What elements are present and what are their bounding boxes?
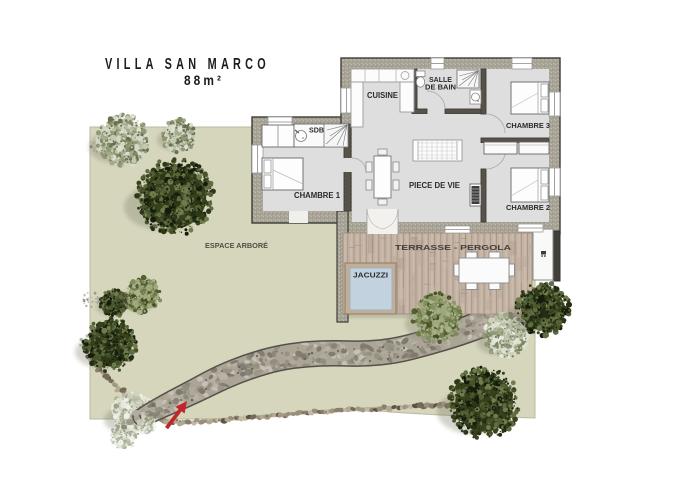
svg-text:SDB: SDB bbox=[309, 128, 324, 135]
svg-text:ESPACE ARBORÉ: ESPACE ARBORÉ bbox=[205, 241, 268, 250]
svg-text:88m²: 88m² bbox=[184, 73, 224, 88]
svg-text:CHAMBRE 1: CHAMBRE 1 bbox=[294, 191, 341, 200]
svg-text:TERRASSE - PERGOLA: TERRASSE - PERGOLA bbox=[395, 243, 512, 252]
svg-text:PIECE DE VIE: PIECE DE VIE bbox=[409, 181, 461, 190]
svg-text:VILLA SAN MARCO: VILLA SAN MARCO bbox=[105, 56, 270, 73]
svg-text:CHAMBRE 3: CHAMBRE 3 bbox=[506, 121, 550, 130]
svg-text:CUISINE: CUISINE bbox=[367, 91, 399, 100]
svg-text:CHAMBRE 2: CHAMBRE 2 bbox=[506, 203, 550, 212]
svg-text:JACUZZI: JACUZZI bbox=[353, 271, 388, 280]
svg-text:DE BAIN: DE BAIN bbox=[425, 83, 456, 92]
